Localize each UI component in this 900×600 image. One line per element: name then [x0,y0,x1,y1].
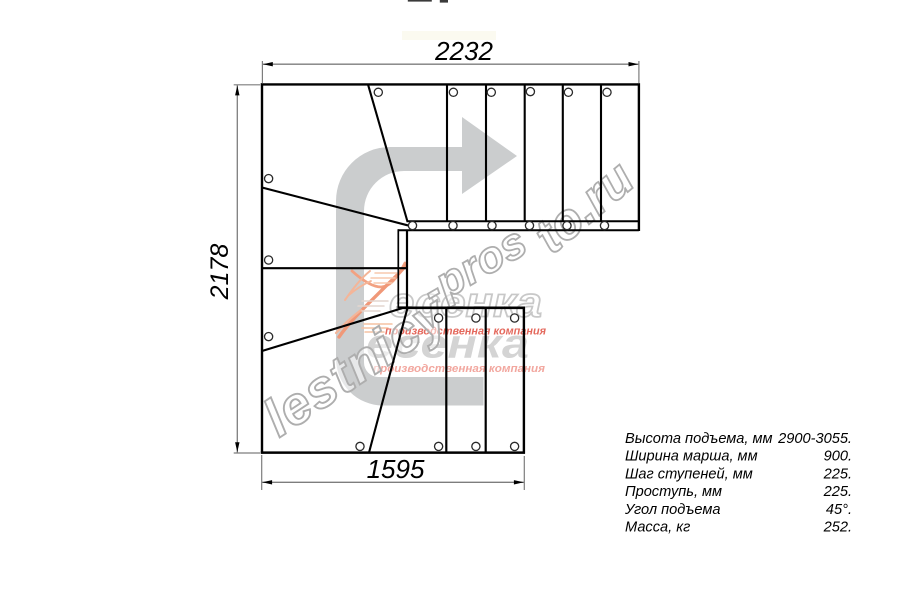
svg-text:2900-3055.: 2900-3055. [777,431,852,447]
svg-text:Угол подъема: Угол подъема [624,502,720,518]
svg-text:225.: 225. [823,484,852,500]
svg-text:Шаг ступеней, мм: Шаг ступеней, мм [625,466,753,482]
svg-text:2178: 2178 [206,244,234,301]
svg-text:Ширина марша, мм: Ширина марша, мм [625,449,758,465]
svg-text:225.: 225. [823,466,852,482]
svg-text:2232: 2232 [434,36,493,66]
svg-text:Проступь, мм: Проступь, мм [625,484,722,500]
svg-text:45°.: 45°. [826,502,852,518]
svg-text:252.: 252. [823,520,852,536]
svg-text:Масса, кг: Масса, кг [625,520,690,536]
svg-text:900.: 900. [824,449,852,465]
svg-text:1595: 1595 [367,454,425,484]
svg-text:Высота подъема, мм: Высота подъема, мм [625,431,773,447]
